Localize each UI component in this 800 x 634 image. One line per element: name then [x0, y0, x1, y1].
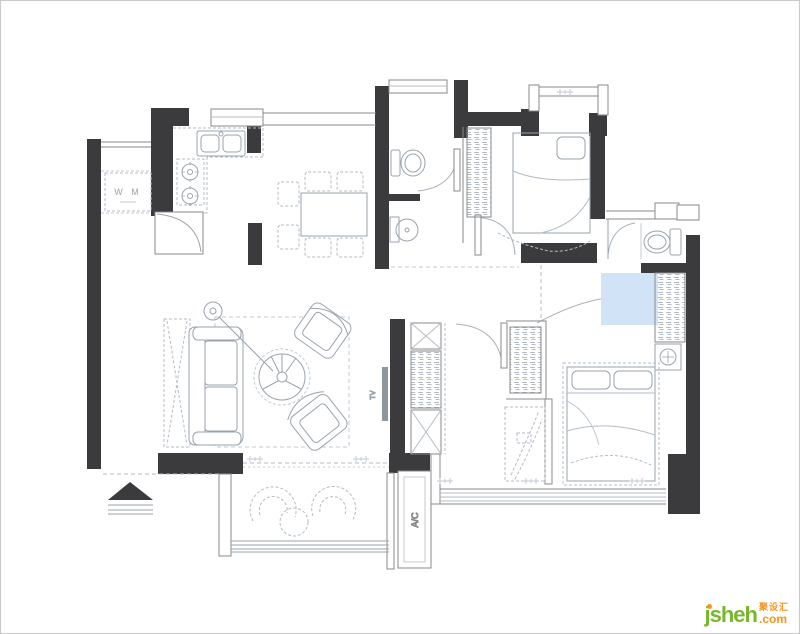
wall-left-outer: [87, 139, 101, 469]
bathroom-shared: [389, 150, 425, 242]
washing-machine-area: W M: [101, 171, 151, 213]
bed-bedroom2: [498, 133, 590, 251]
pillow: [614, 371, 652, 389]
dining-chairs: [278, 172, 363, 257]
floor-plan-screenshot: W M: [0, 0, 800, 634]
ensuite-bathroom: [641, 223, 681, 259]
watermark-logo: jsheh 聚设汇 .com: [705, 603, 789, 625]
dimension-marks: [247, 456, 263, 462]
balcony: [250, 486, 356, 536]
entry-mark: [108, 482, 153, 514]
wall-thin-balcony-right: [387, 473, 394, 569]
door-leaf-bathroom: [454, 149, 460, 191]
dining-table: [301, 193, 367, 236]
entry-steps: [108, 505, 153, 514]
watermark-tld: .com: [759, 613, 789, 625]
wall-ensuite-south: [641, 263, 687, 273]
washing-machine-label: W M: [114, 187, 142, 197]
wall-corner-se: [668, 454, 700, 514]
wash-basin: [390, 217, 418, 242]
dimension-marks: [353, 456, 369, 462]
watermark-cjk: 聚设汇: [759, 603, 789, 612]
dining-chair: [337, 238, 363, 257]
kitchen-cooktop: [177, 159, 204, 206]
door-arc-master-suite: [537, 298, 607, 323]
sofa: [189, 327, 243, 445]
door-leaf-bedroom2: [475, 215, 481, 255]
hall-wardrobe: [411, 351, 441, 408]
wall-kitchen-west: [151, 108, 173, 216]
wall-bedroom2-south: [521, 243, 597, 263]
nightstand: [655, 344, 681, 370]
wall-bath-divider: [389, 194, 420, 201]
watermark-brand: jsheh: [705, 602, 757, 627]
door-arc-ensuite: [608, 223, 635, 255]
wall-thin-bedroom2-nw: [529, 85, 539, 111]
wall-dining-bath: [375, 86, 389, 269]
dimension-marks: [523, 478, 539, 484]
entry-arrow-icon: [108, 482, 153, 500]
dining-chair: [337, 172, 363, 191]
wall-thin-master-west: [545, 399, 552, 484]
wall-tv: [390, 319, 405, 453]
logo-dot-icon: [707, 604, 712, 609]
wall-stub-kitchen-se: [248, 223, 262, 265]
armchair: [292, 300, 354, 361]
balcony-table: [280, 508, 308, 536]
door-leaf-master-hall: [501, 323, 507, 368]
master-niche: [505, 321, 552, 484]
dimension-marks: [629, 478, 645, 484]
wall-thin-balcony-left: [219, 474, 231, 556]
wall-thin-bedroom2-ne: [598, 85, 608, 115]
wall-right-outer: [686, 235, 700, 465]
bed-master: [563, 363, 659, 485]
wall-bedroom2-east: [590, 113, 605, 219]
window-master-south: [440, 489, 666, 504]
hallway-cabinets: [411, 323, 445, 454]
wall-bath-right: [454, 80, 468, 138]
wall-stub-kitchen-ne: [247, 122, 261, 153]
wall-thin-master-window-stub: [431, 454, 440, 504]
dining-chair: [305, 238, 331, 257]
tv-label: TV: [370, 390, 377, 399]
pillow: [557, 137, 585, 159]
watermark-brand-wrap: jsheh: [705, 606, 757, 625]
wardrobe-bedroom2: [467, 128, 491, 217]
dining-chair: [305, 172, 331, 191]
wall-bedroom2-stub-left: [521, 109, 539, 136]
tv-unit: [382, 367, 388, 421]
master-suite-closet: [601, 273, 685, 370]
ac-platform: A/C: [398, 471, 431, 568]
watermark-side: 聚设汇 .com: [759, 603, 789, 625]
ac-label: A/C: [410, 512, 420, 528]
wardrobe-master-hall: [510, 327, 541, 393]
highlight-area: [601, 273, 658, 325]
toilet: [391, 150, 425, 176]
wall-thin-ensuite-bump: [655, 203, 679, 219]
dimension-marks: [557, 89, 573, 95]
balcony-railing: [231, 541, 389, 552]
toilet-ensuite: [644, 229, 681, 255]
wall-living-south-right: [389, 453, 430, 473]
balcony-chair: [250, 487, 296, 521]
coffee-table: [254, 349, 310, 405]
window-ensuite: [677, 205, 699, 220]
floor-plan-canvas: W M: [1, 1, 799, 633]
wall-living-south-left: [158, 453, 243, 474]
dining-chair: [278, 182, 299, 206]
wardrobe-master-east: [655, 273, 685, 342]
kitchen-fridge: [155, 212, 203, 254]
dresser-mirror: [505, 407, 545, 481]
kitchen-sink: [197, 131, 245, 156]
side-cabinet: [164, 319, 190, 447]
armchair: [283, 385, 350, 453]
balcony-chair: [312, 486, 356, 519]
dining-chair: [278, 225, 299, 249]
door-arc-master-hall: [456, 324, 503, 368]
dining-area: [278, 172, 367, 257]
pillow: [572, 371, 610, 389]
living-room: TV: [164, 300, 388, 453]
